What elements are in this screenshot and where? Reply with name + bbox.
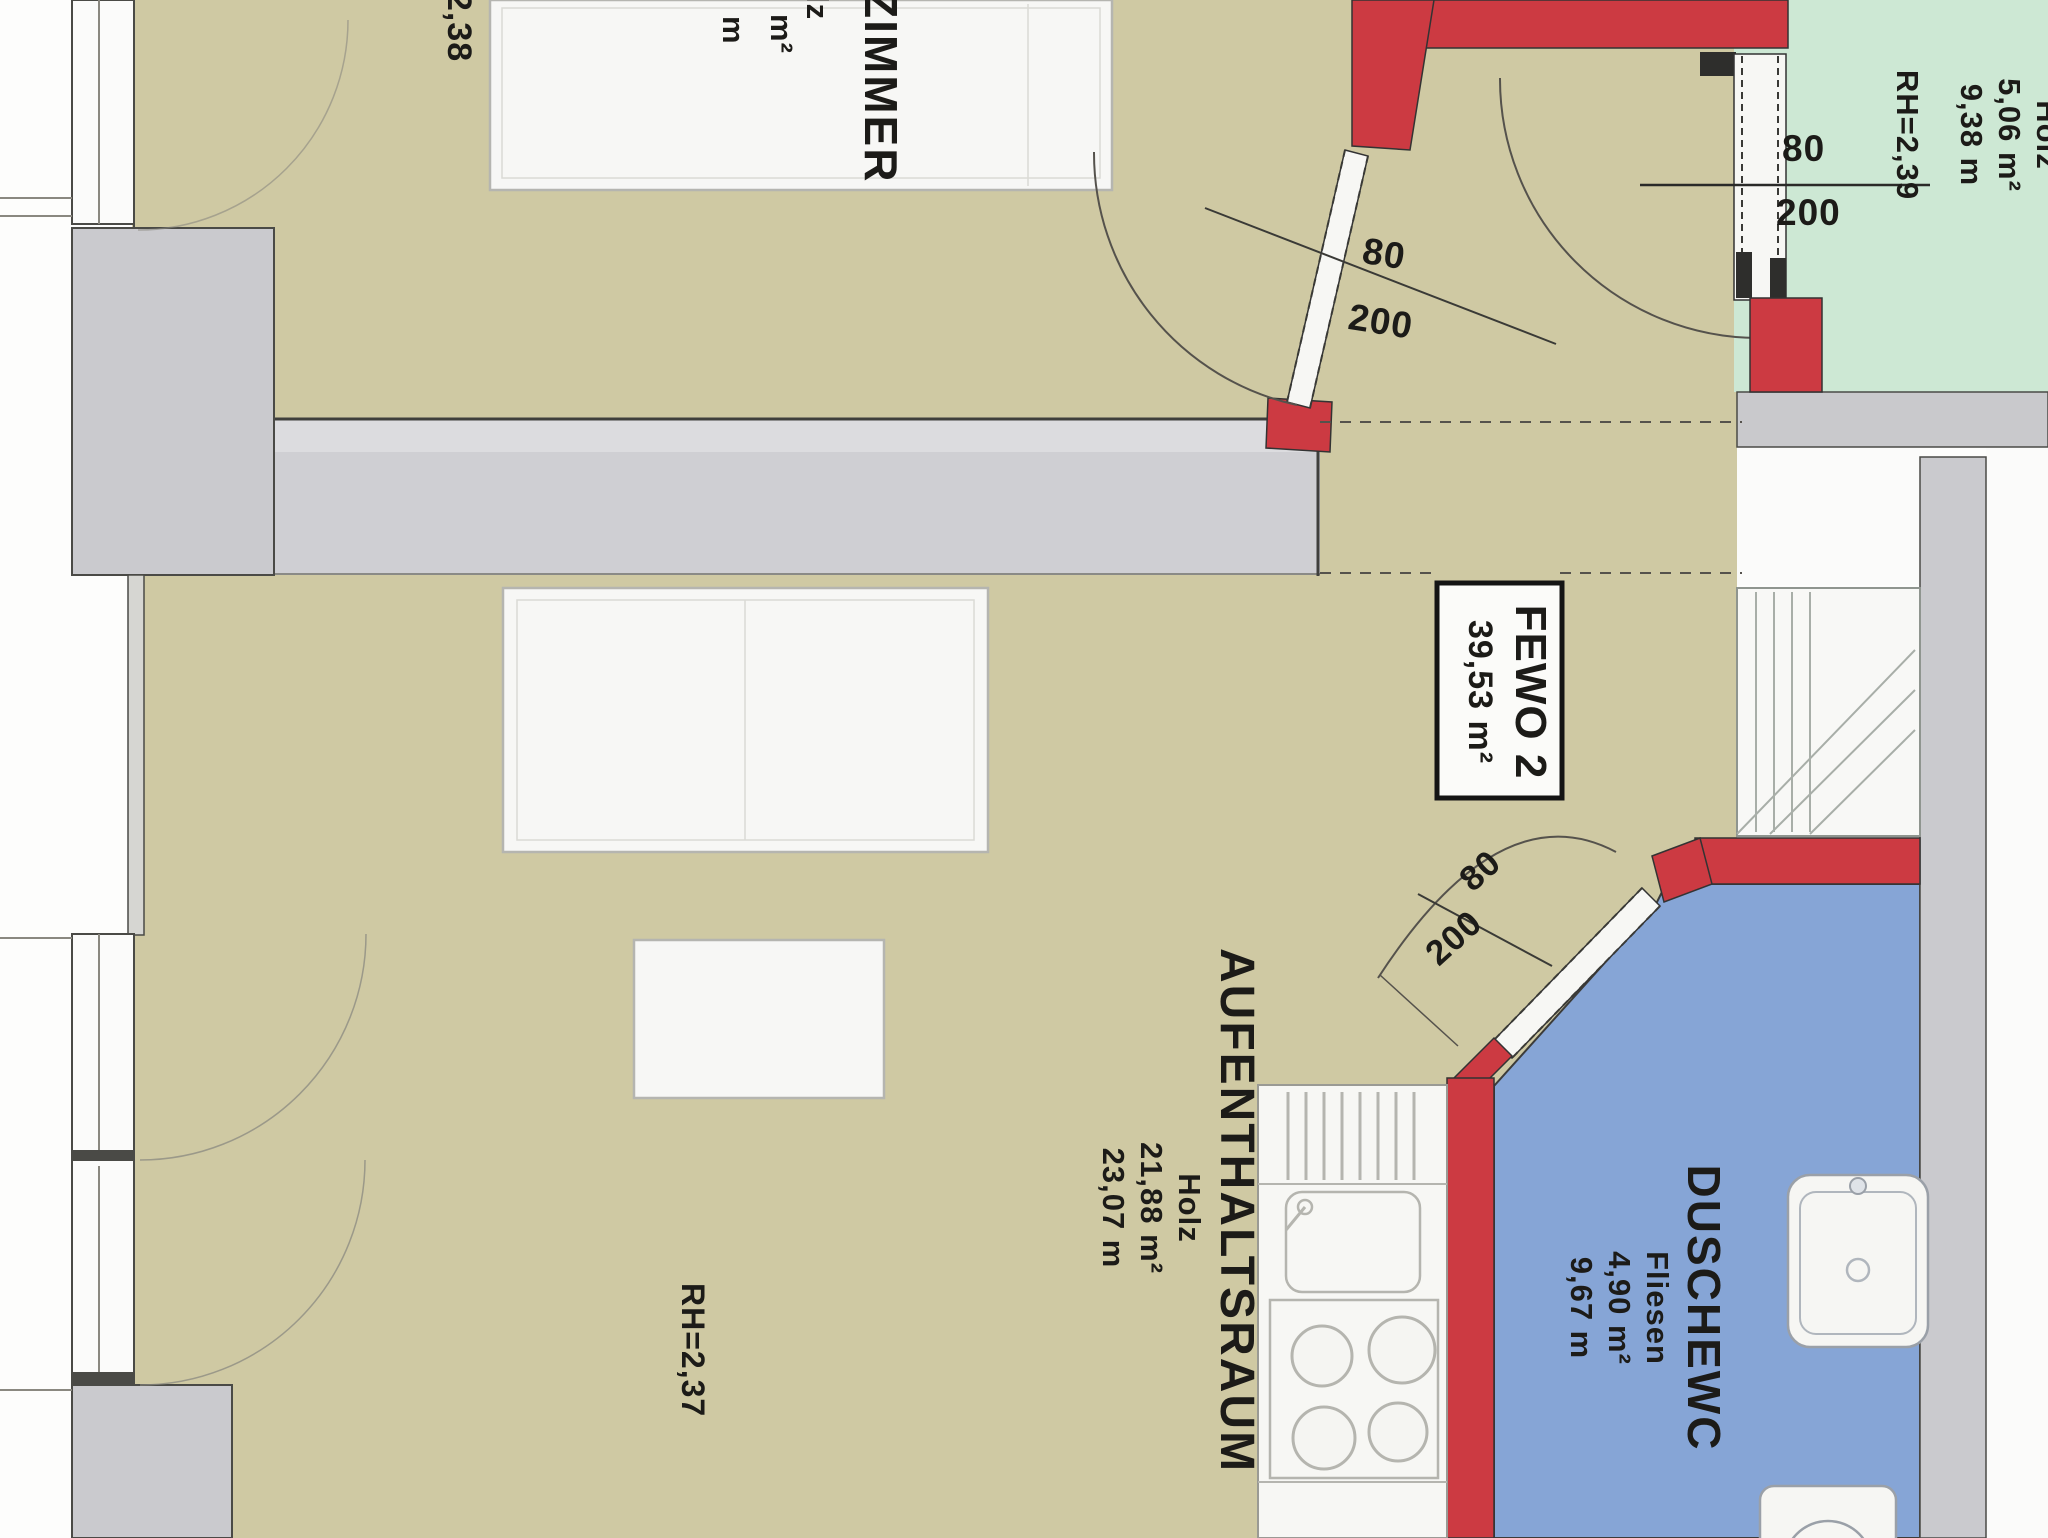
aufenthaltsraum-perimeter: 23,07 m [1094, 948, 1132, 1468]
red-wall-top-bar [1420, 0, 1788, 48]
corridor-wall-band-light [206, 418, 1320, 452]
green-room-area: 5,06 m² [1990, 15, 2028, 255]
green-room-material: Holz [2028, 15, 2048, 255]
door-zimmer-width: 80 [1359, 230, 1408, 278]
outside-right [1986, 447, 2048, 1538]
unit-label: FEWO 2 39,53 m² [1458, 592, 1558, 792]
washbasin [1788, 1175, 1928, 1347]
red-wall-stub [1266, 398, 1332, 452]
green-room-perimeter: 9,38 m [1952, 15, 1990, 255]
aufenthaltsraum-name: AUFENTHALTSRAUM [1208, 948, 1264, 1468]
toilet [1760, 1486, 1896, 1538]
unit-name: FEWO 2 [1502, 592, 1558, 792]
bathroom-top-red-wall [1695, 838, 1920, 884]
zimmer-material-fragment: lz [798, 0, 836, 20]
bottom-left-wall-block [72, 1385, 232, 1538]
white-gap [1737, 447, 1920, 585]
kitchen-counter [1258, 1085, 1447, 1538]
bed-zimmer [490, 0, 1112, 190]
right-wall [1920, 457, 1986, 1538]
duschewc-name: DUSCHEWC [1676, 1148, 1732, 1468]
zimmer-perimeter-fragment: m [714, 16, 752, 45]
floor-plan: ZIMMER lz m² m 2,38 Holz 5,06 m² 9,38 m … [0, 0, 2048, 1538]
duschewc-material: Fliesen [1638, 1148, 1676, 1468]
closet [1737, 588, 1920, 836]
bathroom-left-red-wall [1447, 1078, 1494, 1538]
zimmer-label: ZIMMER [854, 0, 908, 183]
left-wall-block [72, 228, 274, 575]
aufenthaltsraum-material: Holz [1170, 948, 1208, 1468]
window-mid-left [0, 934, 134, 1166]
aufenthaltsraum-label: AUFENTHALTSRAUM Holz 21,88 m² 23,07 m [1094, 948, 1264, 1468]
wall-end-cap [1700, 52, 1736, 76]
green-room-bottom-wall [1737, 392, 2048, 447]
bed-aufenthaltsraum [503, 588, 988, 852]
zimmer-area-fragment: m² [762, 14, 800, 54]
duschewc-perimeter: 9,67 m [1562, 1148, 1600, 1468]
duschewc-label: DUSCHEWC Fliesen 4,90 m² 9,67 m [1562, 1148, 1732, 1468]
table [634, 940, 884, 1098]
window-bottom-left [0, 1160, 134, 1390]
door-top-right-width: 80 [1782, 128, 1825, 170]
green-room-rh: RH=2,39 [1888, 15, 1926, 255]
window-top-left [0, 0, 134, 224]
aufenthaltsraum-area: 21,88 m² [1132, 948, 1170, 1468]
green-room-label: Holz 5,06 m² 9,38 m RH=2,39 [1888, 15, 2048, 255]
left-exterior-wall [128, 575, 144, 935]
aufenthaltsraum-rh: RH=2,37 [674, 1283, 712, 1417]
door-top-right-height: 200 [1776, 192, 1841, 234]
floor-plan-drawing [0, 0, 2048, 1538]
zimmer-rh-fragment: 2,38 [440, 0, 478, 62]
duschewc-area: 4,90 m² [1600, 1148, 1638, 1468]
unit-area: 39,53 m² [1458, 592, 1502, 792]
